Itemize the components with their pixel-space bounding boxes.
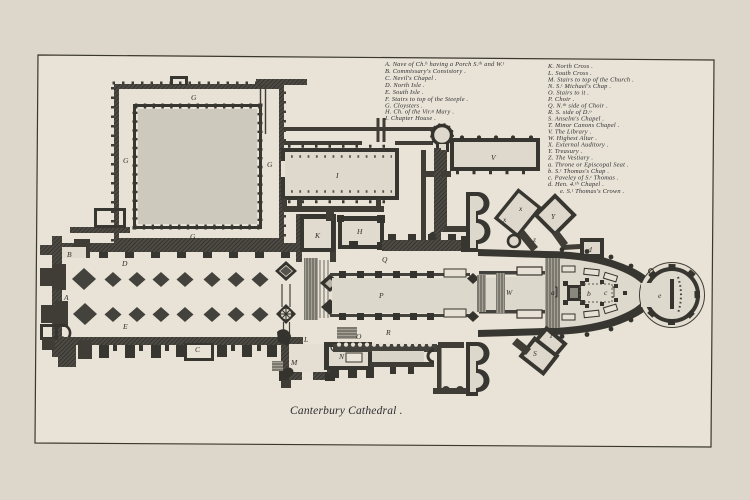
svg-text:G: G	[190, 232, 196, 241]
svg-text:z: z	[532, 235, 536, 244]
svg-text:P: P	[378, 291, 384, 300]
svg-text:b: b	[587, 289, 591, 298]
svg-text:S: S	[533, 349, 537, 358]
svg-text:D. North Isle .: D. North Isle .	[384, 82, 425, 89]
svg-text:B: B	[67, 250, 72, 259]
svg-text:R: R	[385, 328, 391, 337]
svg-text:W: W	[506, 288, 513, 297]
svg-text:O: O	[356, 332, 362, 341]
svg-text:A: A	[63, 293, 69, 302]
svg-text:I. Chapter House .: I. Chapter House .	[384, 115, 436, 122]
svg-text:I: I	[335, 171, 339, 180]
svg-text:e. S.t Thomas's Crown .: e. S.t Thomas's Crown .	[560, 188, 625, 196]
svg-text:A. Nave of Ch.h having a Porch: A. Nave of Ch.h having a Porch S.th and …	[384, 61, 505, 69]
svg-text:E. South Isle .: E. South Isle .	[384, 89, 424, 96]
svg-text:E: E	[122, 322, 128, 331]
svg-text:Z. The Vestiary .: Z. The Vestiary .	[548, 155, 593, 162]
svg-text:a: a	[551, 288, 555, 297]
svg-text:B. Commissary's Consistory .: B. Commissary's Consistory .	[385, 68, 466, 75]
svg-text:K. North Cross .: K. North Cross .	[547, 63, 593, 70]
svg-text:x: x	[518, 204, 523, 213]
svg-text:N: N	[338, 352, 345, 361]
svg-text:L: L	[303, 335, 308, 344]
svg-text:Canterbury Cathedral .: Canterbury Cathedral .	[290, 405, 403, 417]
svg-text:D: D	[121, 259, 128, 268]
svg-text:G: G	[191, 93, 197, 102]
svg-text:G: G	[123, 156, 129, 165]
svg-text:Q: Q	[382, 255, 388, 264]
svg-text:x: x	[502, 215, 507, 224]
svg-text:G: G	[267, 160, 273, 169]
svg-text:C. Nevil's Chapel .: C. Nevil's Chapel .	[385, 75, 437, 82]
svg-text:M: M	[290, 358, 298, 367]
svg-text:K: K	[314, 231, 321, 240]
svg-text:H: H	[356, 227, 363, 236]
